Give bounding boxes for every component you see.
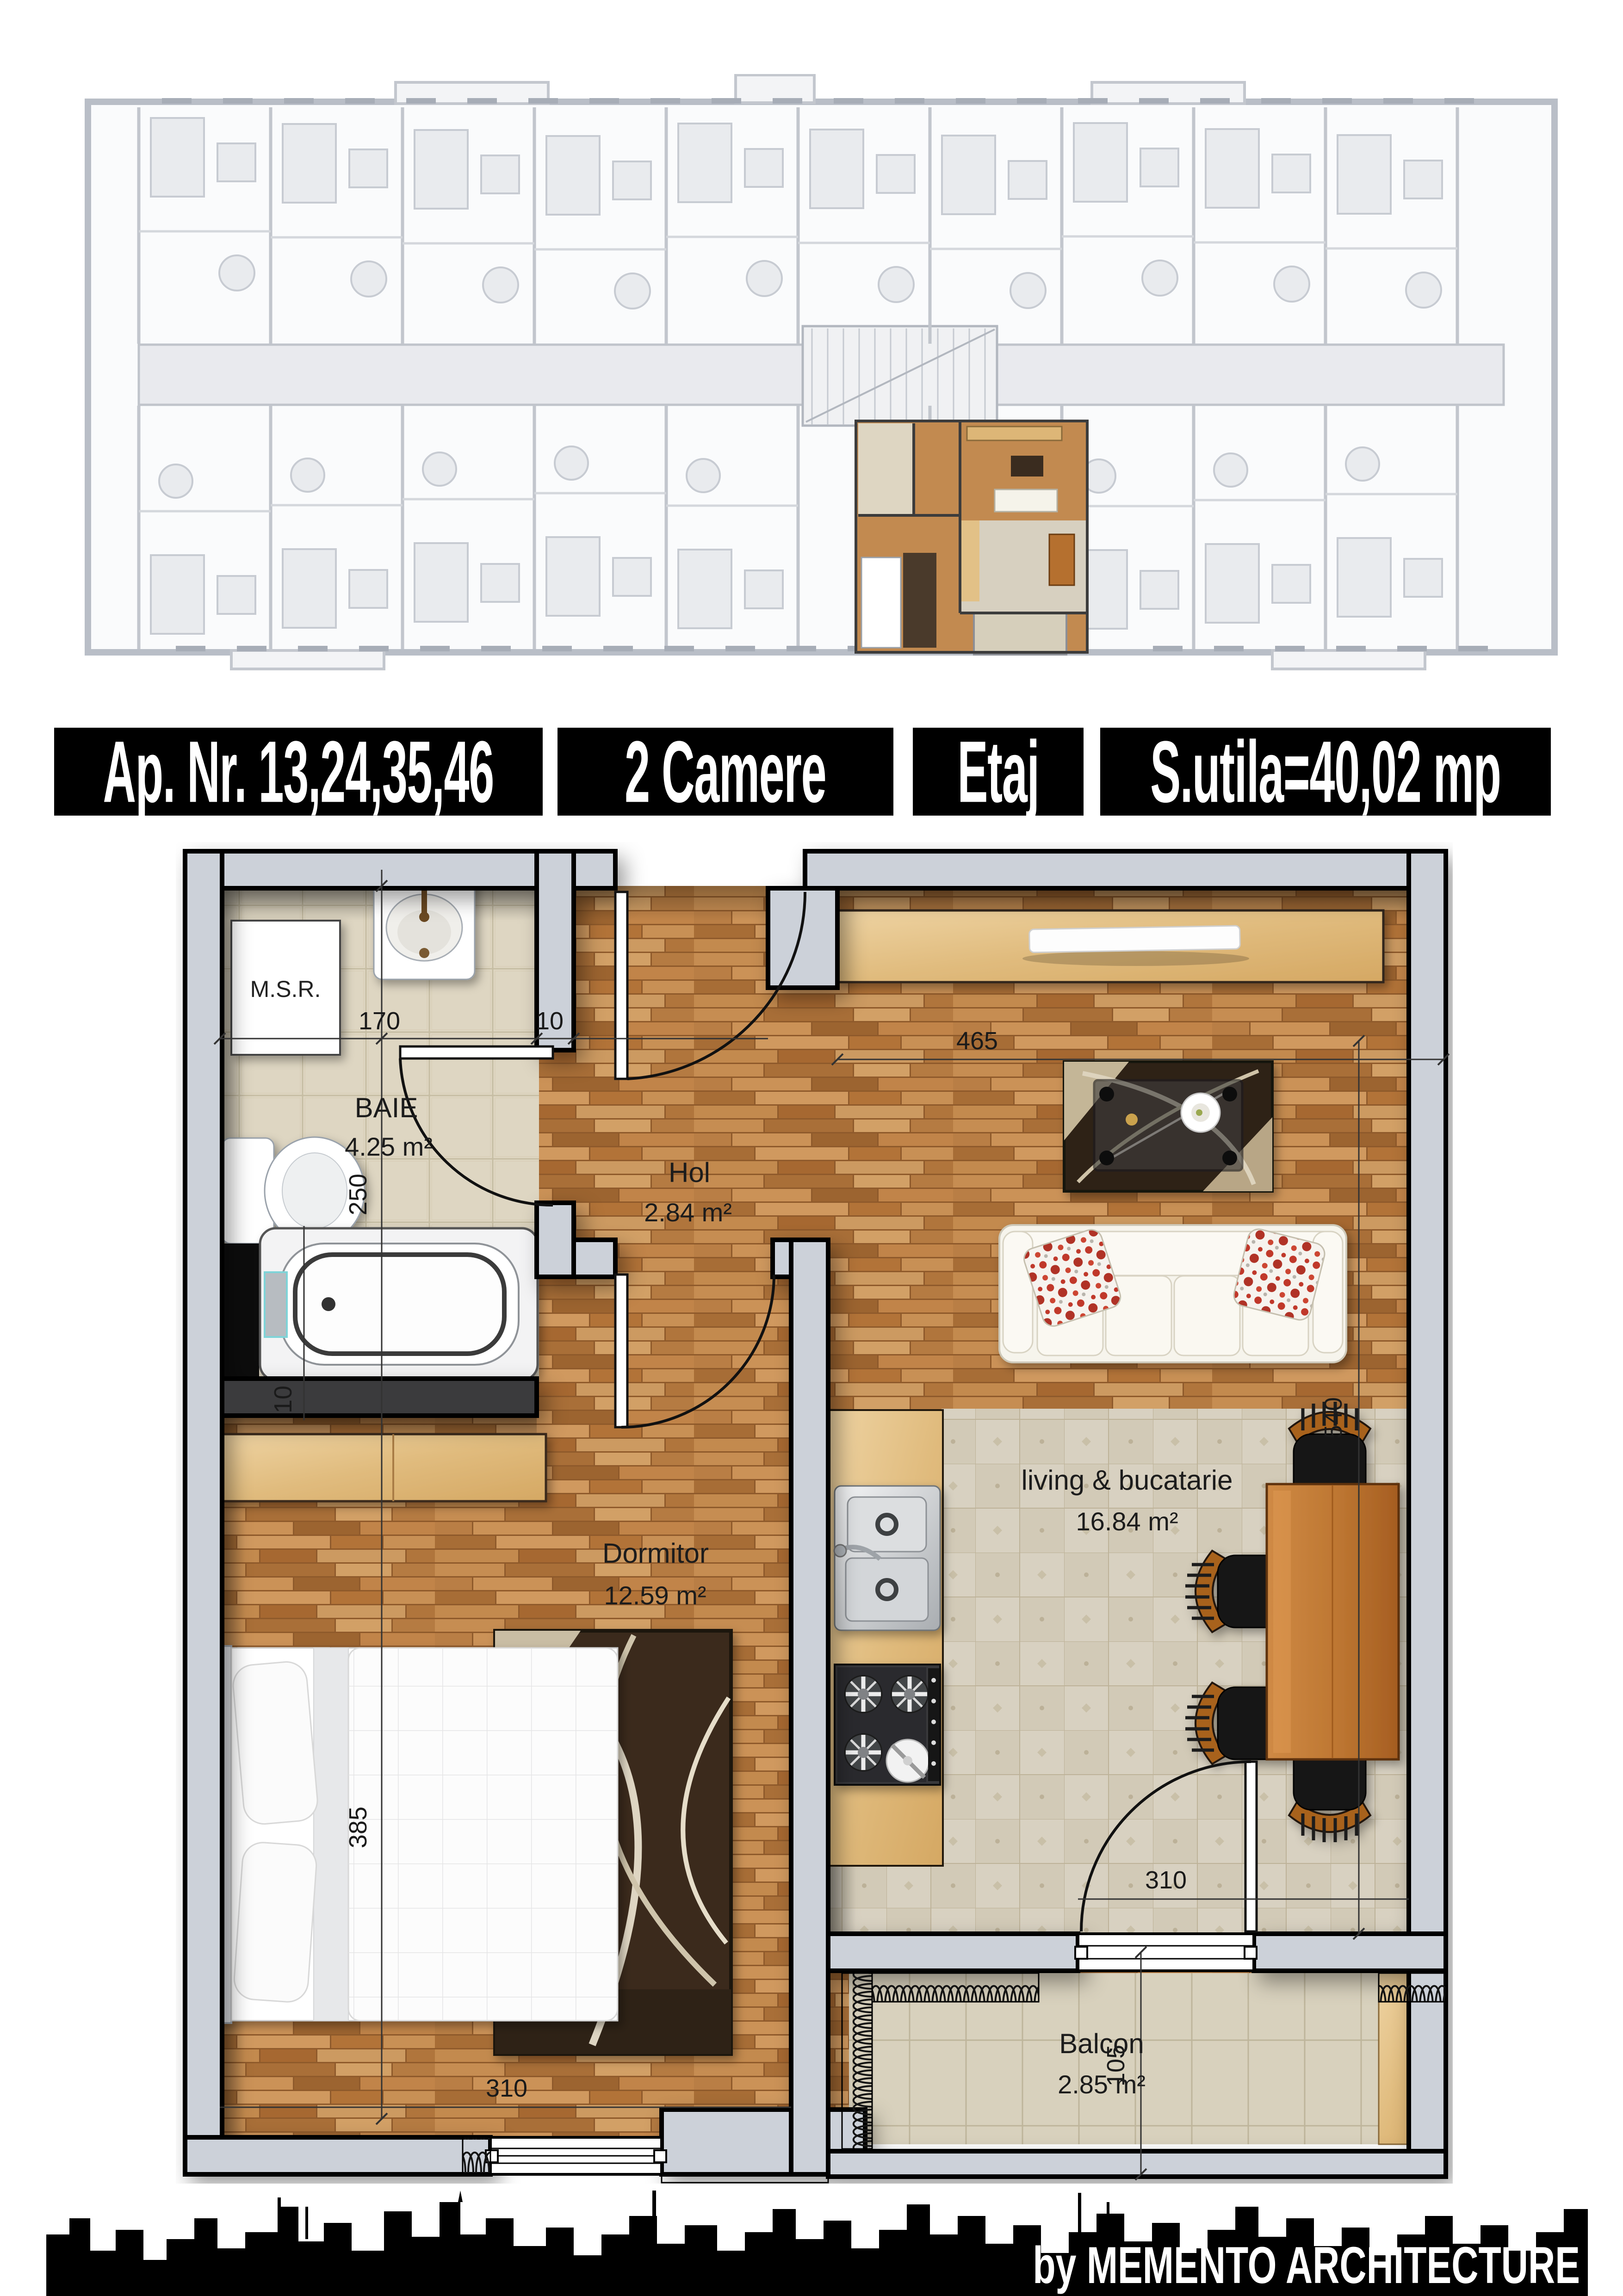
overview-detail xyxy=(895,98,924,104)
overview-detail xyxy=(151,555,204,634)
overview-detail xyxy=(1322,98,1352,104)
credit-label: by MEMENTO ARCHITECTURE xyxy=(1033,2236,1580,2294)
sofa xyxy=(999,1225,1346,1362)
balcony-door xyxy=(1075,1934,1257,1971)
kitchen-counter xyxy=(829,1410,943,1866)
overview-detail xyxy=(420,646,450,651)
dim-baie-height: 250 xyxy=(344,1174,372,1215)
floor-label: Etaj xyxy=(957,728,1039,816)
overview-detail xyxy=(415,130,468,209)
dim-dorm-height: 385 xyxy=(344,1807,372,1848)
overview-detail xyxy=(291,458,324,492)
overview-detail xyxy=(1272,155,1310,192)
overview-detail xyxy=(745,149,783,187)
overview-detail xyxy=(650,98,680,104)
overview-detail xyxy=(747,261,782,296)
overview-detail xyxy=(956,98,985,104)
building-overview xyxy=(69,74,1573,675)
overview-detail xyxy=(1338,538,1391,617)
stove xyxy=(835,1665,940,1785)
room-label-balcon: Balcon xyxy=(1059,2028,1144,2059)
overview-detail xyxy=(1444,98,1474,104)
overview-detail xyxy=(1383,98,1413,104)
overview-detail xyxy=(603,646,633,651)
overview-detail xyxy=(1009,161,1047,199)
kettle xyxy=(886,1739,929,1782)
overview-detail xyxy=(217,576,255,614)
room-area-balcon: 2.85 m² xyxy=(1058,2070,1146,2099)
overview-detail xyxy=(349,149,387,187)
overview-detail xyxy=(613,558,651,596)
overview-detail xyxy=(745,570,783,608)
overview-detail xyxy=(467,98,497,104)
overview-detail xyxy=(589,98,619,104)
dim-dorm-width: 310 xyxy=(486,2074,527,2102)
overview-detail xyxy=(879,267,914,302)
overview-detail xyxy=(555,446,588,480)
overview-detail xyxy=(1338,135,1391,214)
overview-detail xyxy=(159,464,192,498)
room-label-hol: Hol xyxy=(669,1157,710,1188)
floor-badge: Etaj xyxy=(913,728,1084,816)
overview-detail xyxy=(162,98,192,104)
overview-detail xyxy=(237,646,266,651)
overview-detail xyxy=(1078,98,1108,104)
overview-detail xyxy=(725,646,755,651)
overview-detail xyxy=(176,646,205,651)
overview-detail xyxy=(1404,161,1442,198)
overview-detail xyxy=(223,98,253,104)
overview-detail xyxy=(613,161,651,199)
overview-detail xyxy=(481,646,511,651)
overview-detail xyxy=(283,549,336,628)
overview-detail xyxy=(810,130,863,208)
overview-detail xyxy=(678,550,731,628)
overview-detail xyxy=(1346,447,1379,481)
overview-detail xyxy=(542,646,572,651)
overview-detail xyxy=(1274,266,1309,302)
bathroom-door-leaf xyxy=(400,1046,553,1058)
overview-detail xyxy=(1139,98,1169,104)
overview-detail xyxy=(415,543,468,622)
usable-area-label: S.utila=40,02 mp xyxy=(1150,728,1500,816)
overview-detail xyxy=(481,564,519,602)
overview-detail xyxy=(1206,544,1259,623)
apartment-number-badge: Ap. Nr. 13,24,35,46 xyxy=(54,728,543,816)
overview-detail xyxy=(546,136,600,215)
overview-detail xyxy=(345,98,375,104)
overview-detail xyxy=(1142,260,1177,296)
room-area-baie: 4.25 m² xyxy=(345,1132,433,1161)
tv xyxy=(1029,926,1240,953)
overview-detail xyxy=(423,452,456,486)
overview-detail xyxy=(1153,646,1183,651)
overview-detail xyxy=(1140,149,1178,186)
overview-detail xyxy=(1336,646,1366,651)
room-label-dormitor: Dormitor xyxy=(602,1538,709,1569)
apartment-number-label: Ap. Nr. 13,24,35,46 xyxy=(103,728,494,816)
overview-detail xyxy=(1017,98,1047,104)
overview-detail xyxy=(687,459,720,492)
overview-detail xyxy=(217,143,255,181)
bed xyxy=(212,1646,618,2023)
dim-living-width: 465 xyxy=(956,1027,998,1055)
overview-detail xyxy=(664,646,694,651)
overview-detail xyxy=(1272,565,1310,603)
overview-detail xyxy=(942,136,995,214)
dim-balcony-door: 310 xyxy=(1145,1866,1187,1894)
shaft xyxy=(222,1244,259,1380)
overview-detail xyxy=(481,155,519,193)
dim-bath-wall: 10 xyxy=(269,1386,297,1413)
rooms-count-label: 2 Camere xyxy=(625,728,826,816)
overview-detail xyxy=(284,98,314,104)
dim-baie-width: 170 xyxy=(359,1007,400,1035)
overview-detail xyxy=(219,255,254,291)
overview-detail xyxy=(877,155,915,193)
overview-detail xyxy=(1458,646,1488,651)
overview-detail xyxy=(1397,646,1427,651)
overview-detail xyxy=(1406,272,1441,308)
entrance-door-leaf xyxy=(615,892,627,1079)
overview-detail xyxy=(349,570,387,608)
overview-detail xyxy=(834,98,863,104)
overview-detail xyxy=(283,124,336,203)
apartment-floor-plan: M.S.R. xyxy=(176,842,1453,2184)
bathtub xyxy=(260,1228,538,1380)
kitchen xyxy=(829,1410,943,1866)
stairwell xyxy=(803,326,997,426)
coffee-table-rug xyxy=(1064,1062,1272,1191)
featured-unit xyxy=(856,421,1087,655)
overview-detail xyxy=(1404,559,1442,597)
bedroom-window xyxy=(486,2137,666,2174)
overview-detail xyxy=(1206,129,1259,208)
room-area-hol: 2.84 m² xyxy=(644,1198,732,1227)
dim-wall: 10 xyxy=(536,1007,564,1035)
overview-detail xyxy=(528,98,558,104)
bedroom-door-leaf xyxy=(615,1275,627,1427)
overview-detail xyxy=(359,646,389,651)
overview-detail xyxy=(351,261,386,297)
overview-detail xyxy=(1074,123,1127,202)
overview-detail xyxy=(546,537,600,616)
overview-detail xyxy=(712,98,741,104)
overview-detail xyxy=(1200,98,1230,104)
overview-detail xyxy=(406,98,436,104)
rooms-count-badge: 2 Camere xyxy=(558,728,893,816)
overview-detail xyxy=(787,646,816,651)
overview-detail xyxy=(678,124,731,202)
room-label-living: living & bucatarie xyxy=(1022,1465,1233,1496)
wardrobe xyxy=(222,1434,546,1501)
dim-living-height: 540 xyxy=(1319,1397,1347,1439)
room-label-baie: BAIE xyxy=(355,1092,418,1123)
credit-text-group: by MEMENTO ARCHITECTURE xyxy=(1033,2236,1580,2294)
overview-detail xyxy=(615,273,650,309)
kitchen-sink xyxy=(834,1486,940,1630)
overview-detail xyxy=(151,118,204,197)
room-area-dormitor: 12.59 m² xyxy=(604,1581,706,1610)
tv-console xyxy=(837,910,1383,982)
msr-label: M.S.R. xyxy=(250,976,321,1002)
tub-faucet-panel xyxy=(265,1272,287,1337)
overview-detail xyxy=(1261,98,1291,104)
overview-detail xyxy=(1214,646,1244,651)
usable-area-badge: S.utila=40,02 mp xyxy=(1100,728,1551,816)
overview-detail xyxy=(1214,453,1247,487)
overview-detail xyxy=(298,646,328,651)
room-area-living: 16.84 m² xyxy=(1076,1507,1178,1536)
floor-plan-sheet: { "title_bar": { "blocks": [ {"label": "… xyxy=(0,0,1623,2296)
footer-skyline: by MEMENTO ARCHITECTURE xyxy=(46,2191,1592,2296)
balcony-door-leaf xyxy=(1245,1762,1257,1931)
overview-detail xyxy=(773,98,802,104)
overview-detail xyxy=(1010,273,1046,308)
overview-detail xyxy=(1140,571,1178,609)
overview-detail xyxy=(1275,646,1305,651)
overview-detail xyxy=(483,267,518,303)
